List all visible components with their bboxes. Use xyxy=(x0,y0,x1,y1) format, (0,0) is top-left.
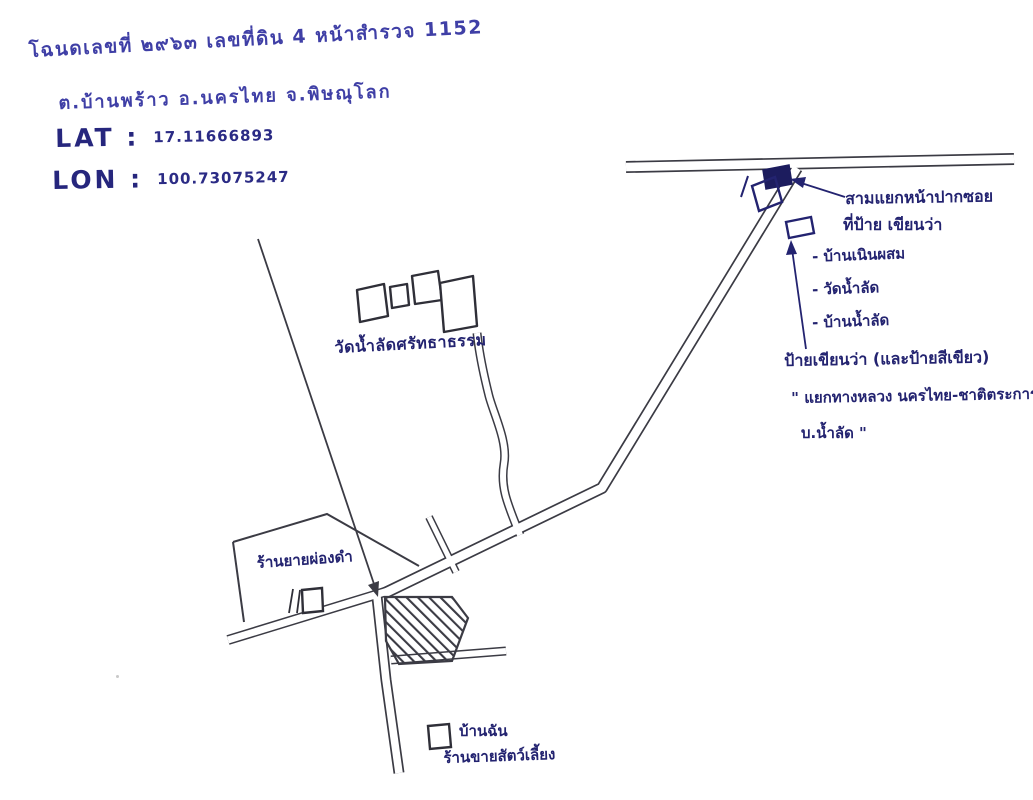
longitude-row: LON : 100.73075247 xyxy=(52,162,290,195)
paper-speck xyxy=(116,675,119,678)
sign-list-item: - บ้านเนินผสม xyxy=(812,241,906,268)
latitude-row: LAT : 17.11666893 xyxy=(55,120,275,153)
lon-label: LON : xyxy=(52,164,143,195)
soi-diagonal-road xyxy=(383,168,797,594)
building xyxy=(390,284,409,308)
shop-building-group xyxy=(289,588,323,613)
sign-post xyxy=(741,176,748,197)
junction-note-line2: ที่ป้าย เขียนว่า xyxy=(843,213,942,238)
building xyxy=(412,271,442,304)
green-sign-note: ป้ายเขียนว่า (และป้ายสีเขียว) xyxy=(784,345,990,374)
lon-value: 100.73075247 xyxy=(157,167,290,187)
building xyxy=(357,284,388,322)
my-house-label: บ้านฉัน xyxy=(459,719,508,743)
junction-note-line1: สามแยกหน้าปากซอย xyxy=(845,184,993,212)
sign-list-item: - บ้านน้ำลัด xyxy=(812,307,906,334)
lat-value: 17.11666893 xyxy=(153,126,274,146)
highway-quote-line2: บ.น้ำลัด " xyxy=(801,421,867,445)
arrowhead-icon xyxy=(786,240,797,255)
hand-drawn-map-scan: โฉนดเลขที่ ๒๙๖๓ เลขที่ดิน 4 หน้าสำรวจ 11… xyxy=(0,0,1033,800)
building xyxy=(440,276,477,332)
lat-label: LAT : xyxy=(55,123,140,153)
building xyxy=(302,588,323,613)
target-land-plot-hatched xyxy=(385,597,468,664)
shop-post xyxy=(289,589,300,613)
highway-quote-line1: " แยกทางหลวง นครไทย-ชาติตระการ- xyxy=(791,382,1033,410)
green-sign-icon xyxy=(786,217,814,238)
sign-list-item: - วัดน้ำลัด xyxy=(812,274,906,301)
temple-buildings xyxy=(357,271,477,332)
sign-text-list: - บ้านเนินผสม - วัดน้ำลัด - บ้านน้ำลัด xyxy=(812,243,905,342)
pet-shop-label: ร้านขายสัตว์เลี้ยง xyxy=(443,742,556,770)
